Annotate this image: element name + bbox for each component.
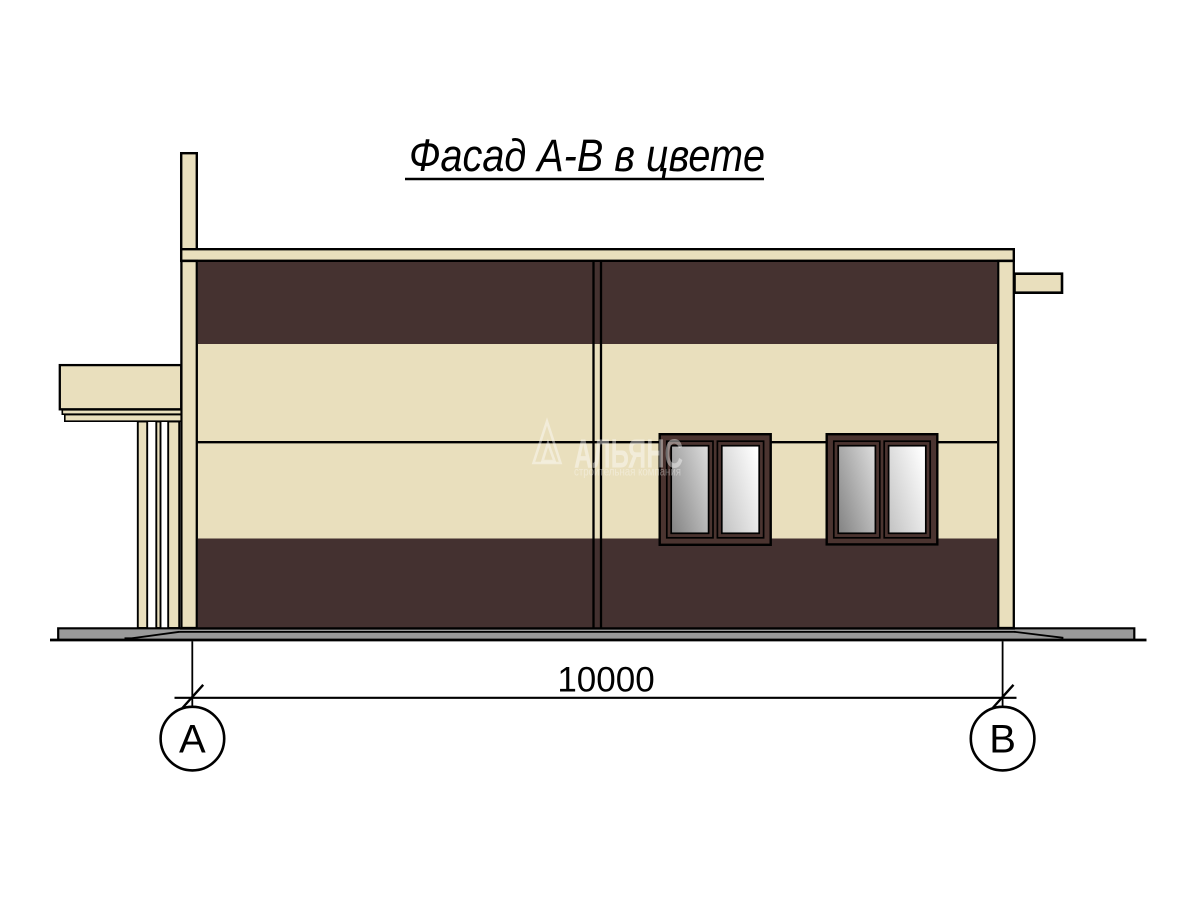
svg-text:А: А bbox=[179, 718, 206, 762]
svg-text:Фасад А-В в цвете: Фасад А-В в цвете bbox=[409, 130, 765, 181]
svg-text:10000: 10000 bbox=[557, 661, 654, 700]
svg-text:строительная компания: строительная компания bbox=[574, 467, 681, 479]
svg-text:В: В bbox=[989, 718, 1016, 762]
